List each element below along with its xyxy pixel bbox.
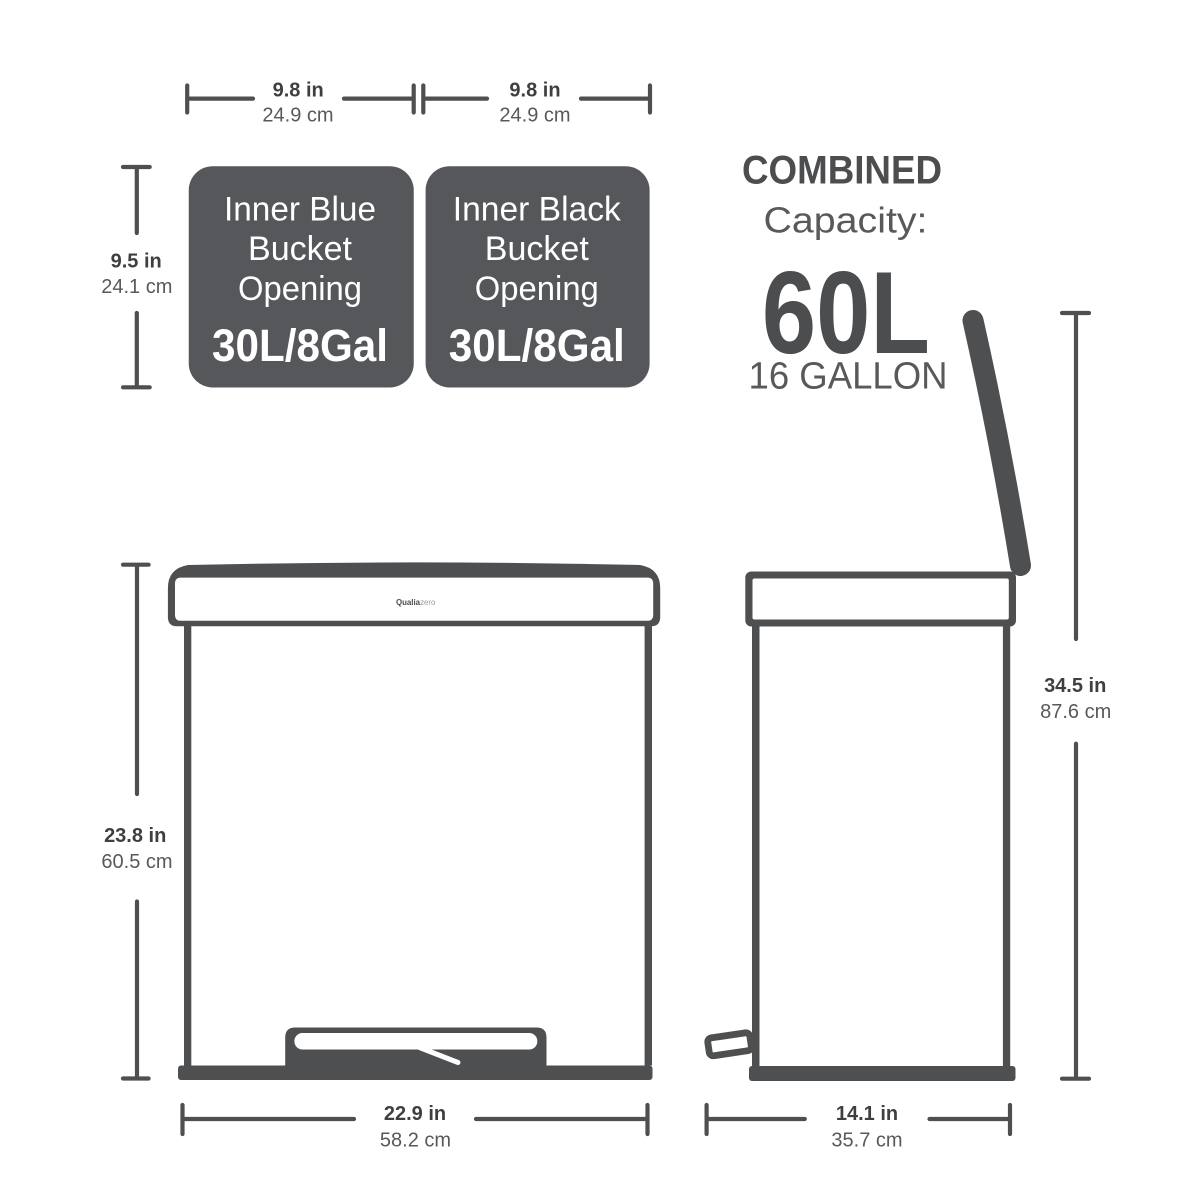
svg-text:COMBINED: COMBINED	[742, 149, 942, 193]
svg-text:58.2 cm: 58.2 cm	[380, 1130, 451, 1152]
svg-text:9.8 in: 9.8 in	[509, 80, 560, 102]
svg-text:16 GALLON: 16 GALLON	[749, 355, 948, 397]
svg-text:34.5 in: 34.5 in	[1044, 675, 1106, 697]
svg-text:Qualiazero: Qualiazero	[396, 598, 436, 607]
svg-text:Capacity:: Capacity:	[764, 199, 928, 240]
svg-text:Inner Blue: Inner Blue	[224, 191, 376, 229]
svg-text:Opening: Opening	[238, 270, 362, 308]
svg-text:30L/8Gal: 30L/8Gal	[212, 320, 388, 371]
svg-text:9.8 in: 9.8 in	[273, 80, 324, 102]
svg-text:22.9 in: 22.9 in	[384, 1103, 446, 1125]
svg-text:14.1 in: 14.1 in	[836, 1103, 898, 1125]
svg-text:24.1 cm: 24.1 cm	[101, 276, 172, 298]
svg-text:30L/8Gal: 30L/8Gal	[449, 320, 625, 371]
svg-text:Bucket: Bucket	[485, 230, 590, 268]
svg-text:Bucket: Bucket	[248, 230, 353, 268]
svg-text:23.8 in: 23.8 in	[104, 825, 166, 847]
svg-text:60.5 cm: 60.5 cm	[101, 851, 172, 873]
svg-text:Opening: Opening	[475, 270, 599, 308]
svg-text:87.6 cm: 87.6 cm	[1040, 701, 1111, 723]
svg-text:24.9 cm: 24.9 cm	[499, 104, 570, 126]
svg-text:Inner Black: Inner Black	[453, 191, 622, 229]
svg-text:35.7 cm: 35.7 cm	[831, 1130, 902, 1152]
svg-text:9.5 in: 9.5 in	[111, 250, 162, 272]
svg-text:24.9 cm: 24.9 cm	[262, 104, 333, 126]
